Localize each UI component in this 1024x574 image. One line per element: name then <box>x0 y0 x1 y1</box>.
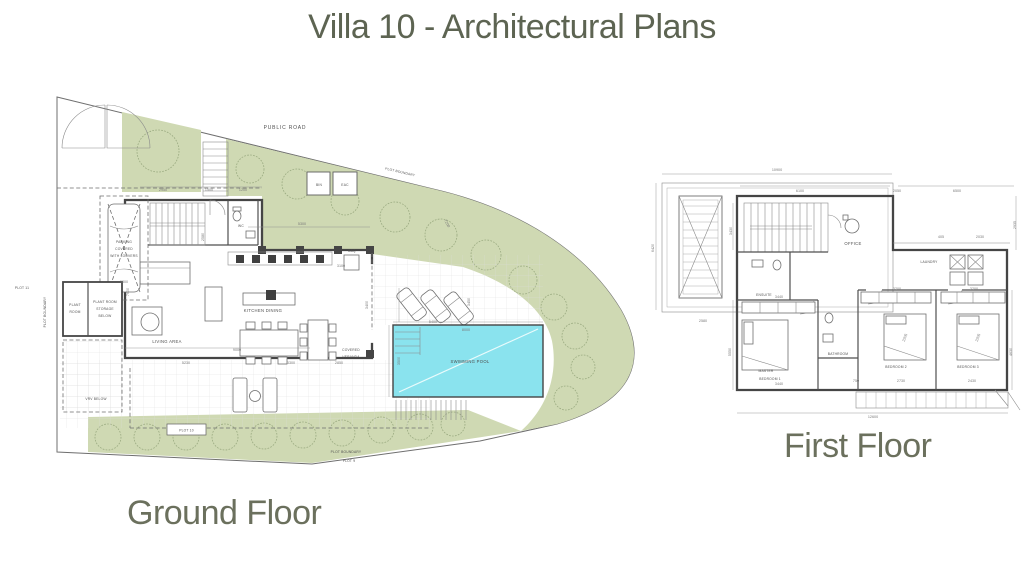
dim: 2580 <box>201 233 205 241</box>
skylight-pergola <box>679 196 722 298</box>
dim: 6500 <box>953 189 961 193</box>
beds <box>742 314 999 370</box>
dim: 3500 <box>397 357 401 365</box>
plot-10-tag: PLOT 10 <box>167 424 206 435</box>
svg-text:PLOT 10: PLOT 10 <box>179 429 194 433</box>
dim: 3440 <box>775 295 783 299</box>
dim: 10900 <box>772 168 782 172</box>
dim: 3300 <box>287 361 295 365</box>
dim: 2430 <box>968 379 976 383</box>
plot-11-label: PLOT 11 <box>15 286 29 290</box>
plant-room-label: PLANT <box>69 303 81 307</box>
bathroom-fixtures <box>823 313 833 342</box>
plot-boundary-top-label: PLOT BOUNDARY <box>385 167 416 178</box>
bin-label: BIN <box>316 183 323 187</box>
plot-9-label: PLOT 9 <box>343 459 356 463</box>
bedroom-3-label: BEDROOM 3 <box>957 365 979 369</box>
dim: 7600 <box>126 288 130 296</box>
dim: 4630 <box>1009 348 1013 356</box>
dim: 2030 <box>976 235 984 239</box>
office-label: OFFICE <box>844 241 861 246</box>
dim: 3440 <box>775 382 783 386</box>
dim: 2950 <box>159 188 167 192</box>
dim: 3300 <box>120 280 128 284</box>
bedroom-2-label: BEDROOM 2 <box>885 365 907 369</box>
laundry-machines <box>950 255 983 285</box>
balcony-strip <box>856 390 1020 410</box>
laundry-label: LAUNDRY <box>920 260 938 264</box>
plant-storage-label: PLANT ROOM <box>93 300 117 304</box>
dim: 3200 <box>970 287 978 291</box>
dim: 9000 <box>233 348 241 352</box>
plot-boundary-bottom-label: PLOT BOUNDARY <box>331 450 362 454</box>
dim: 2935 <box>1013 221 1017 229</box>
svg-text:BELOW: BELOW <box>99 314 113 318</box>
svg-text:BEDROOM 1: BEDROOM 1 <box>759 377 781 381</box>
dim: 405 <box>938 235 944 239</box>
bbq-label: BBQ <box>348 249 356 253</box>
eac-label: EAC <box>341 183 349 187</box>
dim: 6100 <box>796 189 804 193</box>
first-floor-stair <box>744 203 828 252</box>
dim: 1200 <box>239 188 247 192</box>
dim: 3430 <box>729 227 733 235</box>
svg-text:ROOM: ROOM <box>69 310 80 314</box>
dim: 3100 <box>337 264 345 268</box>
dim: 2050 <box>893 189 901 193</box>
dim: 5300 <box>298 222 306 226</box>
dim: 5400 <box>429 320 437 324</box>
svg-text:COVERED: COVERED <box>115 247 133 251</box>
dim: 3200 <box>893 287 901 291</box>
dim: 8000 <box>462 328 470 332</box>
kitchen-dining-label: KITCHEN DINING <box>244 308 282 313</box>
dim: 750 <box>853 379 859 383</box>
ensuite-label: ENSUITE <box>756 293 772 297</box>
master-bedroom-label: MASTER <box>759 369 774 373</box>
office-furniture <box>843 215 859 233</box>
bathroom-label: BATHROOM <box>828 352 848 356</box>
dim: 2850 <box>335 361 343 365</box>
dim: 5550 <box>728 348 732 356</box>
vrv-below-label: VRV BELOW <box>85 397 107 401</box>
architectural-plan-sheet: Villa 10 - Architectural Plans <box>0 0 1024 574</box>
dim: 3400 <box>365 301 369 309</box>
dim: 2730 <box>897 379 905 383</box>
wc-label: WC <box>238 224 244 228</box>
svg-text:WITH LOUVERS: WITH LOUVERS <box>110 254 138 258</box>
svg-text:VERANDA: VERANDA <box>342 355 360 359</box>
plans-drawing: PUBLIC ROAD PLOT BOUNDARY BIN EAC PLOT 1… <box>0 0 1024 574</box>
parking-label: PARKING <box>116 240 132 244</box>
plot-boundary-left-label: PLOT BOUNDARY <box>43 296 47 327</box>
svg-text:STORAGE: STORAGE <box>96 307 114 311</box>
covered-veranda-label: COVERED <box>342 348 360 352</box>
dim: 6420 <box>651 244 655 252</box>
first-floor-plan: OFFICE ENSUITE LAUNDRY MASTER BEDROOM 1 … <box>651 168 1020 419</box>
dim: 1500 <box>205 188 213 192</box>
ground-floor-caption: Ground Floor <box>127 494 321 533</box>
first-floor-caption: First Floor <box>784 427 932 466</box>
ensuite-fixtures <box>752 260 781 270</box>
dim: 3450 <box>467 298 471 306</box>
dim: 5230 <box>182 361 190 365</box>
swimming-pool-label: SWIMMING POOL <box>450 359 489 364</box>
dim: 2580 <box>699 319 707 323</box>
dim: 12600 <box>868 415 878 419</box>
ground-floor-plan: PUBLIC ROAD PLOT BOUNDARY BIN EAC PLOT 1… <box>15 97 634 464</box>
living-area-label: LIVING AREA <box>152 339 181 344</box>
public-road-label: PUBLIC ROAD <box>264 125 307 131</box>
